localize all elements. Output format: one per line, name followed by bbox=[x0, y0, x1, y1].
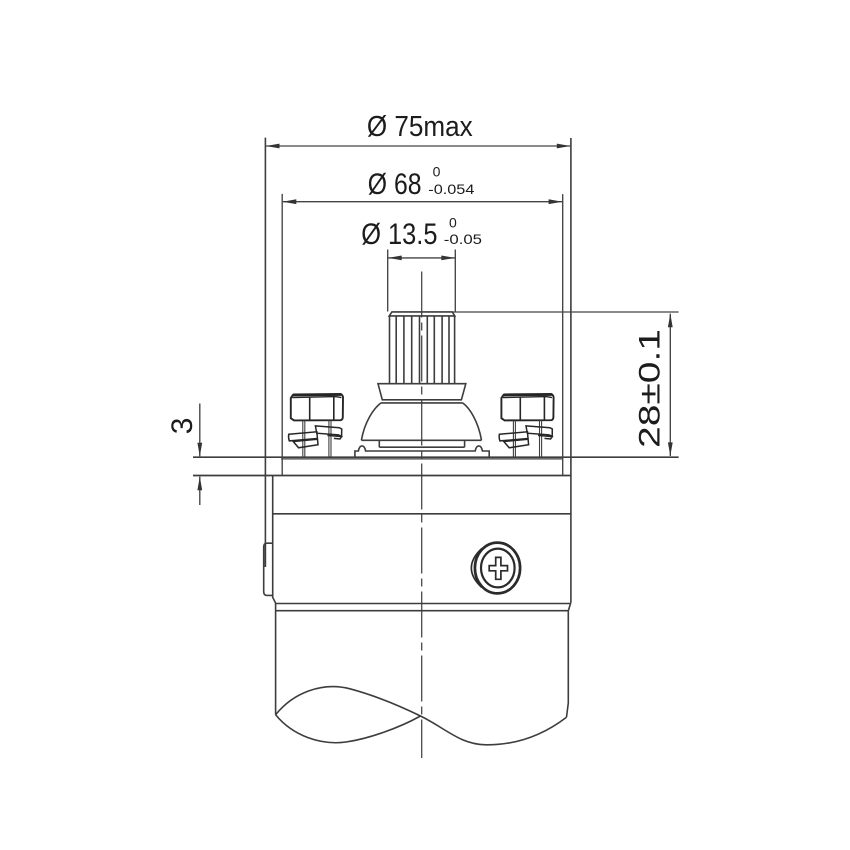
svg-text:Ø 68: Ø 68 bbox=[368, 168, 422, 201]
svg-text:-0.054: -0.054 bbox=[428, 181, 474, 197]
svg-text:0: 0 bbox=[449, 214, 457, 230]
svg-text:-0.05: -0.05 bbox=[444, 231, 482, 247]
svg-text:28±0.1: 28±0.1 bbox=[634, 329, 667, 448]
svg-text:0: 0 bbox=[433, 163, 441, 179]
svg-text:3: 3 bbox=[166, 418, 199, 435]
svg-text:Ø 75max: Ø 75max bbox=[367, 111, 473, 143]
svg-text:Ø 13.5: Ø 13.5 bbox=[361, 218, 437, 251]
